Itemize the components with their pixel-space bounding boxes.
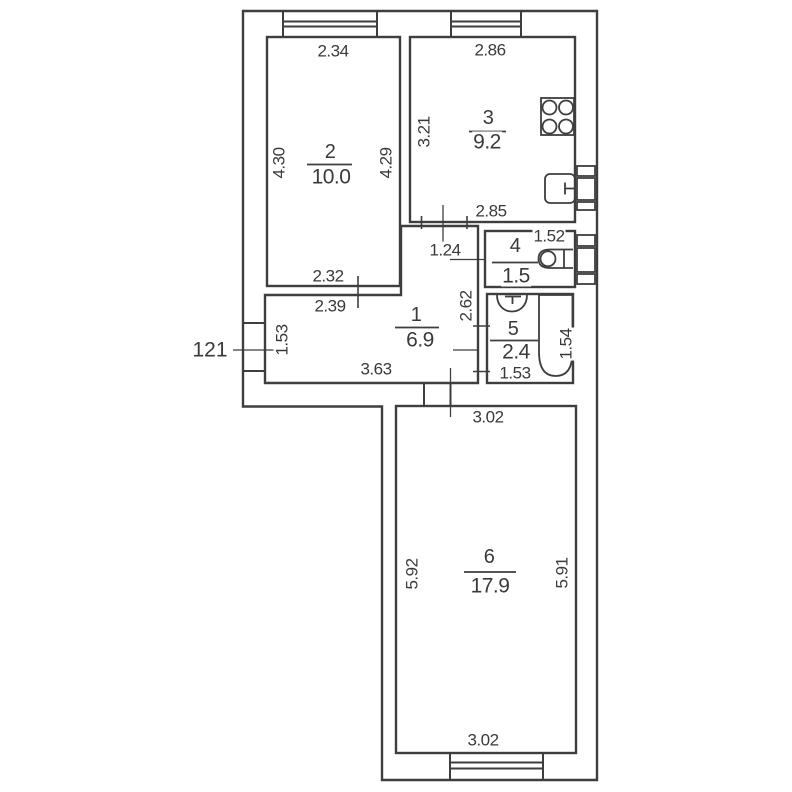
washbasin-icon <box>497 295 527 312</box>
floor-plan: 121 1 6.9 2 10.0 3 9.2 4 1.5 5 2.4 6 17.… <box>0 0 792 792</box>
dimension-lines <box>233 205 486 417</box>
dim-room6-right: 5.91 <box>554 556 571 589</box>
room-4-number: 4 <box>509 236 522 256</box>
window-icon <box>450 753 543 779</box>
dim-room2-top: 2.34 <box>316 43 349 60</box>
dim-room6-left: 5.92 <box>404 557 421 590</box>
dim-hall-right: 2.62 <box>458 289 475 322</box>
dim-hall-top: 2.39 <box>313 298 346 315</box>
dim-hall-bottom: 3.63 <box>359 361 392 378</box>
toilet-icon <box>539 250 574 269</box>
dim-room2-bottom: 2.32 <box>311 268 344 285</box>
room-6-area: 17.9 <box>470 576 511 597</box>
door-opening-room6 <box>424 384 451 406</box>
dim-bath-right: 1.54 <box>558 327 575 360</box>
room-2-area: 10.0 <box>311 167 352 188</box>
dim-room3-top: 2.86 <box>473 42 506 59</box>
dim-room2-right: 4.29 <box>378 146 395 179</box>
kitchen-sink-icon <box>545 174 575 203</box>
floor-plan-drawing <box>0 0 792 792</box>
dim-room6-top: 3.02 <box>471 409 504 426</box>
room-1-number: 1 <box>410 305 423 325</box>
dim-bath-bottom: 1.53 <box>498 365 531 382</box>
dim-hall-nook: 1.24 <box>428 242 461 259</box>
stove-icon <box>541 98 574 135</box>
dim-room6-bottom: 3.02 <box>466 732 499 749</box>
room-5-number: 5 <box>507 319 520 339</box>
dim-room3-left: 3.21 <box>416 115 433 148</box>
apartment-number: 121 <box>191 340 228 361</box>
room-3-area: 9.2 <box>472 132 502 153</box>
room-4-area: 1.5 <box>501 266 531 287</box>
room-3-outline <box>410 37 575 222</box>
room-6-number: 6 <box>483 547 496 567</box>
window-icon <box>283 11 377 37</box>
vent-duct-icon <box>577 166 595 210</box>
dim-room2-left: 4.30 <box>271 146 288 179</box>
vent-duct-icon <box>577 235 595 284</box>
room-2-number: 2 <box>324 142 337 162</box>
room-5-area: 2.4 <box>501 342 531 363</box>
window-icon <box>451 11 521 37</box>
dim-wc-top: 1.52 <box>532 228 565 245</box>
room-3-number: 3 <box>482 108 495 128</box>
dim-room3-bottom: 2.85 <box>474 203 507 220</box>
room-1-area: 6.9 <box>405 330 435 351</box>
dim-hall-left: 1.53 <box>274 323 291 356</box>
entrance-opening <box>243 323 266 371</box>
